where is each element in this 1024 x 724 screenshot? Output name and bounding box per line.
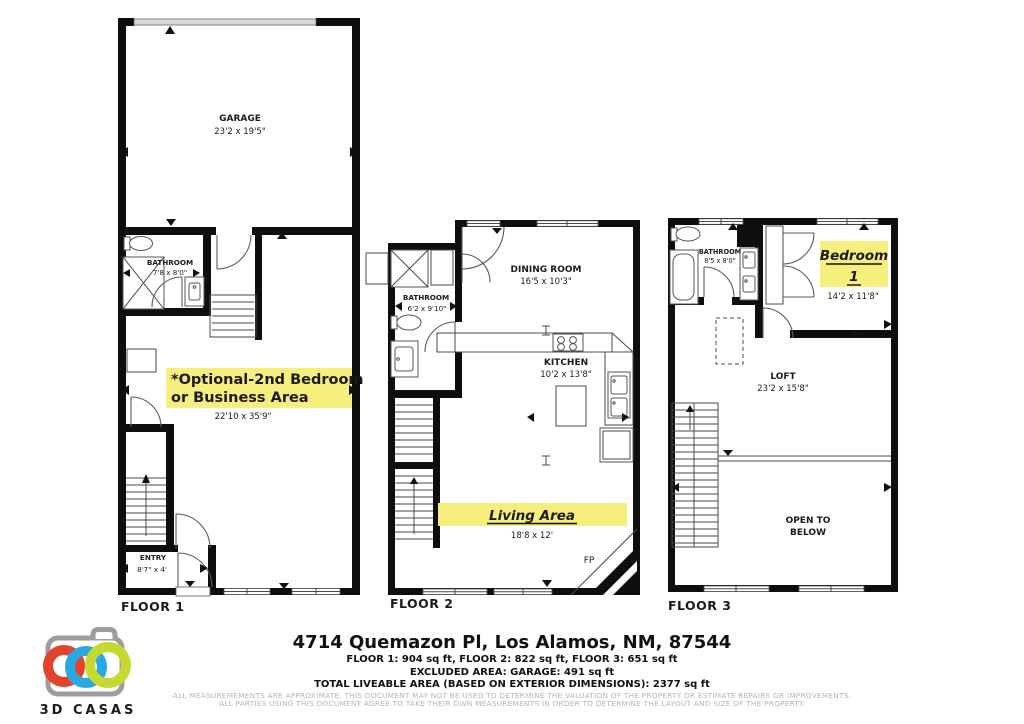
kitchen-sink-icon <box>608 372 630 418</box>
toilet-icon <box>124 237 153 251</box>
floor-areas-line: FLOOR 1: 904 sq ft, FLOOR 2: 822 sq ft, … <box>0 654 1024 667</box>
floor1-windows <box>176 587 340 596</box>
floor2-stairs <box>395 405 433 539</box>
shower-icon <box>391 250 428 287</box>
entry-dims: 8'7" x 4' <box>137 565 167 574</box>
bedroom1-label-line2: 1 <box>849 269 858 285</box>
floor2-plan: BATHROOM 6'2 x 9'10" <box>363 210 643 615</box>
floor3-bedroom: Bedroom 1 14'2 x 11'8" <box>763 226 888 338</box>
stove-icon <box>553 334 583 351</box>
kitchen-label: KITCHEN <box>544 358 588 368</box>
floor3-stairs <box>672 403 718 547</box>
floor1-bathroom-label: BATHROOM <box>147 258 193 267</box>
bedroom1-label-line1: Bedroom <box>820 248 888 264</box>
total-area-line: TOTAL LIVEABLE AREA (BASED ON EXTERIOR D… <box>0 679 1024 692</box>
loft-railing <box>718 456 891 461</box>
lens-rings-icon <box>48 647 126 683</box>
disclaimer-line2: ALL PARTIES USING THIS DOCUMENT AGREE TO… <box>0 700 1024 709</box>
garage-label: GARAGE <box>219 114 261 124</box>
attic-access <box>716 318 743 364</box>
floor2-bathroom-dims: 6'2 x 9'10" <box>408 304 447 313</box>
loft-label: LOFT <box>770 372 796 382</box>
closet <box>766 226 783 304</box>
floor3-loft: LOFT 23'2 x 15'8" OPEN TO BELOW <box>672 318 891 547</box>
garage-door <box>134 19 316 25</box>
sink-icon <box>185 277 204 306</box>
toilet-icon <box>391 315 421 330</box>
sink-icon <box>391 341 418 377</box>
dining-room-dims: 16'5 x 10'3" <box>520 277 572 287</box>
refrigerator-icon <box>600 428 633 462</box>
floor2-label: FLOOR 2 <box>390 596 454 611</box>
optional-room-label-line2: or Business Area <box>171 390 309 406</box>
logo-text: 3D CASAS <box>40 703 137 718</box>
optional-room-label-line1: *Optional-2nd Bedroom <box>171 372 364 388</box>
garage-dims: 23'2 x 19'5" <box>214 127 266 137</box>
fireplace: FP <box>571 529 637 595</box>
utility-closet <box>366 253 388 284</box>
floor1-bathroom-dims: 7'8 x 8'0" <box>153 268 187 277</box>
open-to-below-label-line2: BELOW <box>790 528 826 538</box>
floor1-main-room: *Optional-2nd Bedroom or Business Area 2… <box>127 349 364 427</box>
optional-room-dims: 22'10 x 35'9" <box>215 412 272 422</box>
floor-plan-document: *Optional-2nd Bedroom or Business Area 2… <box>0 0 1024 724</box>
toilet-icon <box>671 227 700 241</box>
bathtub-icon <box>670 250 698 304</box>
floor3-label: FLOOR 3 <box>668 598 732 613</box>
floor3-plan: BATHROOM 8'5 x 8'0" Bedroom 1 14'2 x 11'… <box>661 211 905 615</box>
floor2-kitchen: KITCHEN 10'2 x 13'8" <box>437 333 633 462</box>
door-arc <box>704 267 734 297</box>
property-address: 4714 Quemazon Pl, Los Alamos, NM, 87544 <box>0 632 1024 654</box>
loft-dims: 23'2 x 15'8" <box>757 384 809 394</box>
living-area-dims: 18'8 x 12' <box>511 531 553 541</box>
floor2-bathroom: BATHROOM 6'2 x 9'10" <box>366 250 455 377</box>
double-vanity-icon <box>740 248 758 300</box>
living-area: Living Area 18'8 x 12' <box>438 503 627 541</box>
closet <box>431 250 453 285</box>
floor3-bathroom-label: BATHROOM <box>699 248 741 256</box>
floor1-stair-hall <box>210 235 256 337</box>
floor1-label: FLOOR 1 <box>121 599 185 614</box>
kitchen-island <box>556 386 586 426</box>
excluded-area-line: EXCLUDED AREA: GARAGE: 491 sq ft <box>0 667 1024 680</box>
door-arc <box>763 308 793 338</box>
bedroom1-dims: 14'2 x 11'8" <box>827 292 879 302</box>
fireplace-label: FP <box>584 556 595 566</box>
floor3-bathroom-dims: 8'5 x 8'0" <box>704 257 736 265</box>
living-area-label: Living Area <box>489 508 575 524</box>
footer: 4714 Quemazon Pl, Los Alamos, NM, 87544 … <box>0 632 1024 709</box>
dining-room-label: DINING ROOM <box>511 265 582 275</box>
floor2-entry-doors <box>462 227 504 282</box>
3d-casas-logo: 3D CASAS <box>36 622 140 722</box>
door-arc <box>425 322 455 352</box>
floor2-bathroom-label: BATHROOM <box>403 293 449 302</box>
closet-double-doors <box>783 233 814 297</box>
open-to-below-label-line1: OPEN TO <box>786 516 831 526</box>
floor1-plan: *Optional-2nd Bedroom or Business Area 2… <box>113 8 369 616</box>
kitchen-dims: 10'2 x 13'8" <box>540 370 592 380</box>
entry-label: ENTRY <box>140 553 167 562</box>
